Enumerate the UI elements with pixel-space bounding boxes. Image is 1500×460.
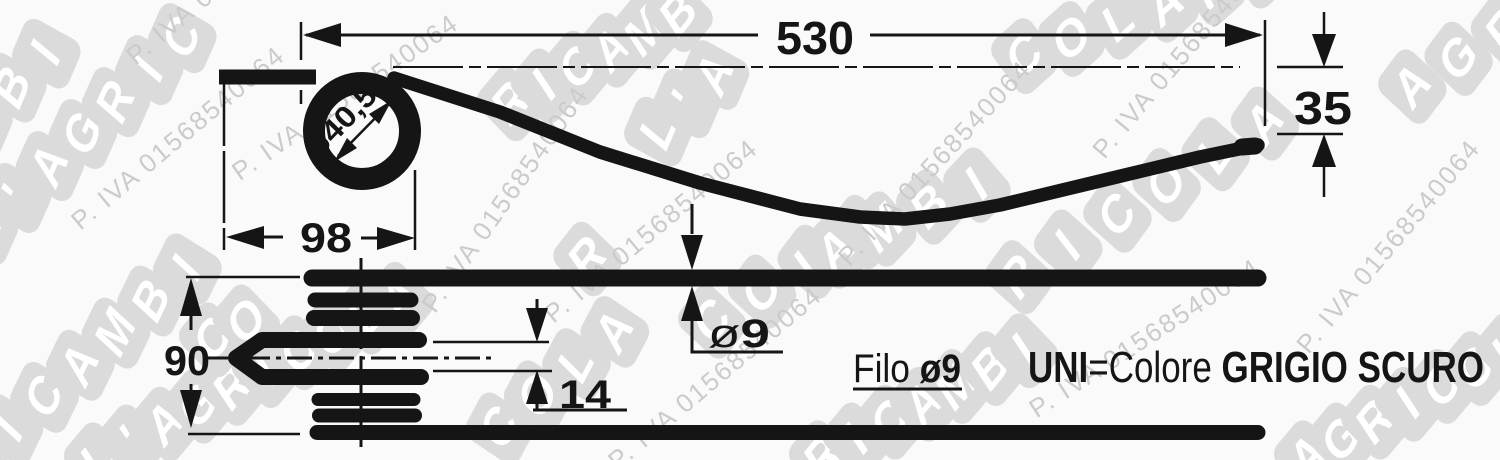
svg-text:Filo ø9: Filo ø9 [853, 347, 961, 391]
svg-text:14: 14 [559, 373, 612, 417]
svg-text:98: 98 [300, 214, 352, 261]
svg-text:90: 90 [164, 337, 210, 384]
svg-text:35: 35 [1294, 82, 1352, 134]
svg-text:530: 530 [776, 12, 854, 64]
svg-text:UNI=Colore GRIGIO SCURO: UNI=Colore GRIGIO SCURO [1028, 343, 1484, 392]
svg-text:ø9: ø9 [708, 312, 770, 356]
